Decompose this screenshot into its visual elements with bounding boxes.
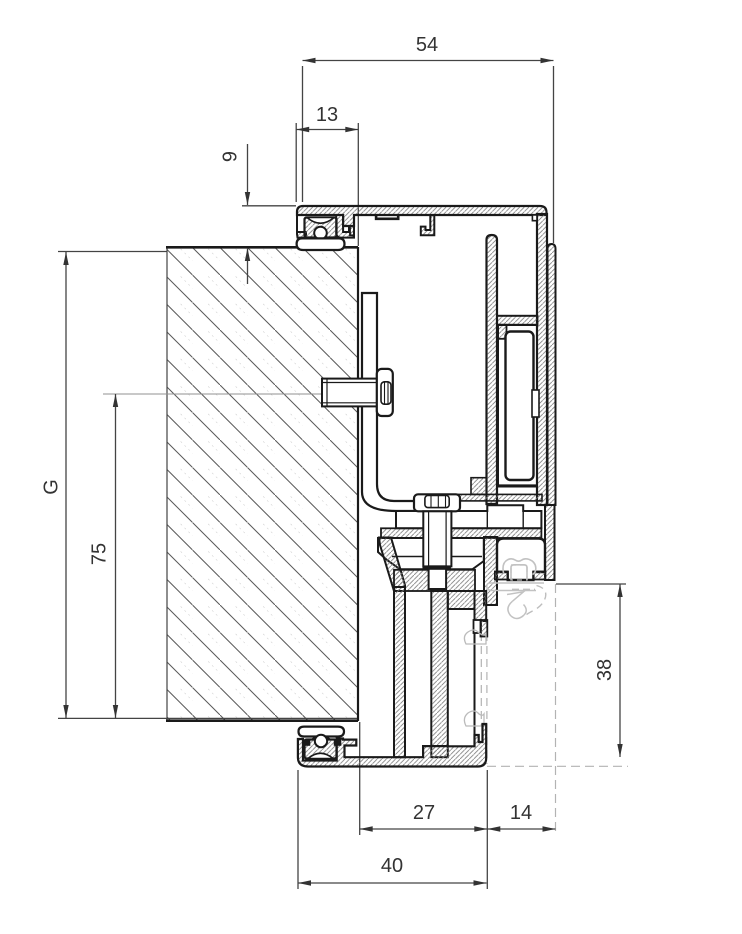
svg-text:75: 75 [89, 543, 111, 565]
svg-text:40: 40 [381, 855, 403, 877]
svg-text:13: 13 [316, 104, 338, 126]
svg-text:54: 54 [416, 34, 438, 56]
svg-text:9: 9 [220, 151, 242, 162]
svg-text:G: G [41, 479, 63, 495]
svg-text:27: 27 [413, 802, 435, 824]
svg-text:38: 38 [594, 659, 616, 681]
svg-text:14: 14 [510, 802, 532, 824]
